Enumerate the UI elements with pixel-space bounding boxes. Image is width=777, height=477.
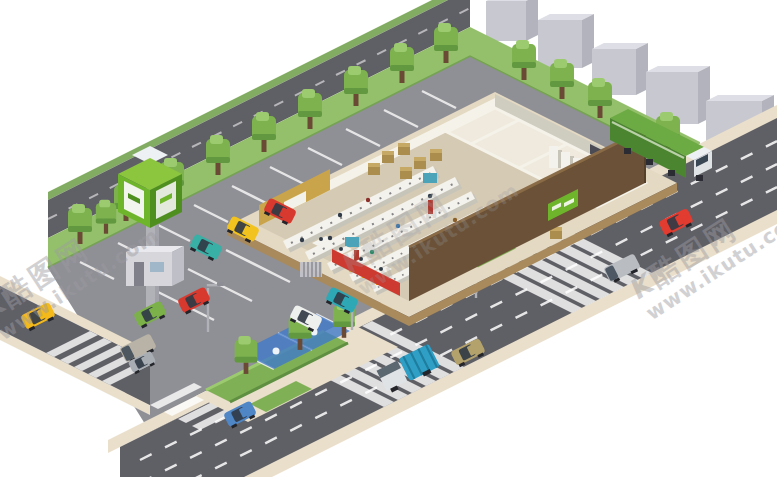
produce-crate bbox=[430, 149, 442, 161]
person bbox=[396, 224, 400, 228]
person bbox=[428, 194, 432, 198]
produce-crate bbox=[400, 167, 412, 179]
person bbox=[300, 238, 304, 242]
person bbox=[453, 218, 457, 222]
cart-corral bbox=[300, 262, 322, 277]
produce-crate bbox=[382, 151, 394, 163]
person bbox=[328, 236, 332, 240]
produce-crate bbox=[398, 143, 410, 155]
produce-crate bbox=[414, 157, 426, 169]
person bbox=[338, 213, 342, 217]
produce-crate bbox=[368, 163, 380, 175]
kiosk-building bbox=[126, 246, 184, 286]
person bbox=[366, 198, 370, 202]
person bbox=[370, 250, 374, 254]
scene-illustration: K 酷图网 www.ikutu.com K 酷图网 www.ikutu.com … bbox=[0, 0, 777, 477]
isometric-scene bbox=[0, 0, 777, 477]
